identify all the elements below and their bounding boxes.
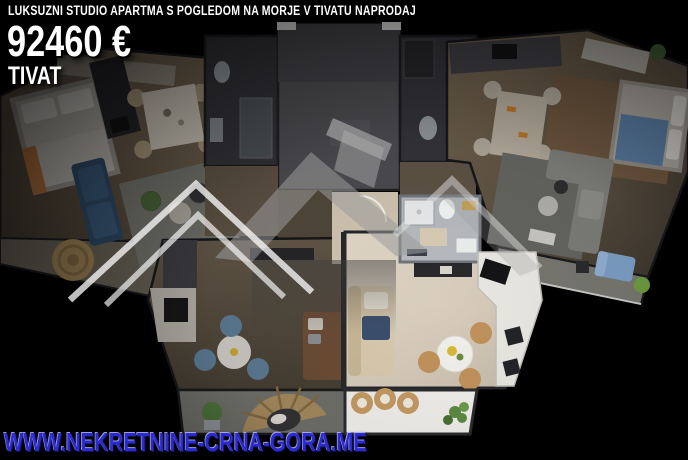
vignette-shading (0, 0, 688, 460)
listing-price: 92460 € (7, 17, 166, 67)
listing-title: LUKSUZNI STUDIO APARTMA S POGLEDOM NA MO… (8, 3, 531, 18)
listing-location: TIVAT (8, 62, 77, 91)
floor-plan-render (0, 0, 688, 460)
listing-image: LUKSUZNI STUDIO APARTMA S POGLEDOM NA MO… (0, 0, 688, 460)
agency-website-url: WWW.NEKRETNINE-CRNA-GORA.ME (4, 427, 469, 458)
